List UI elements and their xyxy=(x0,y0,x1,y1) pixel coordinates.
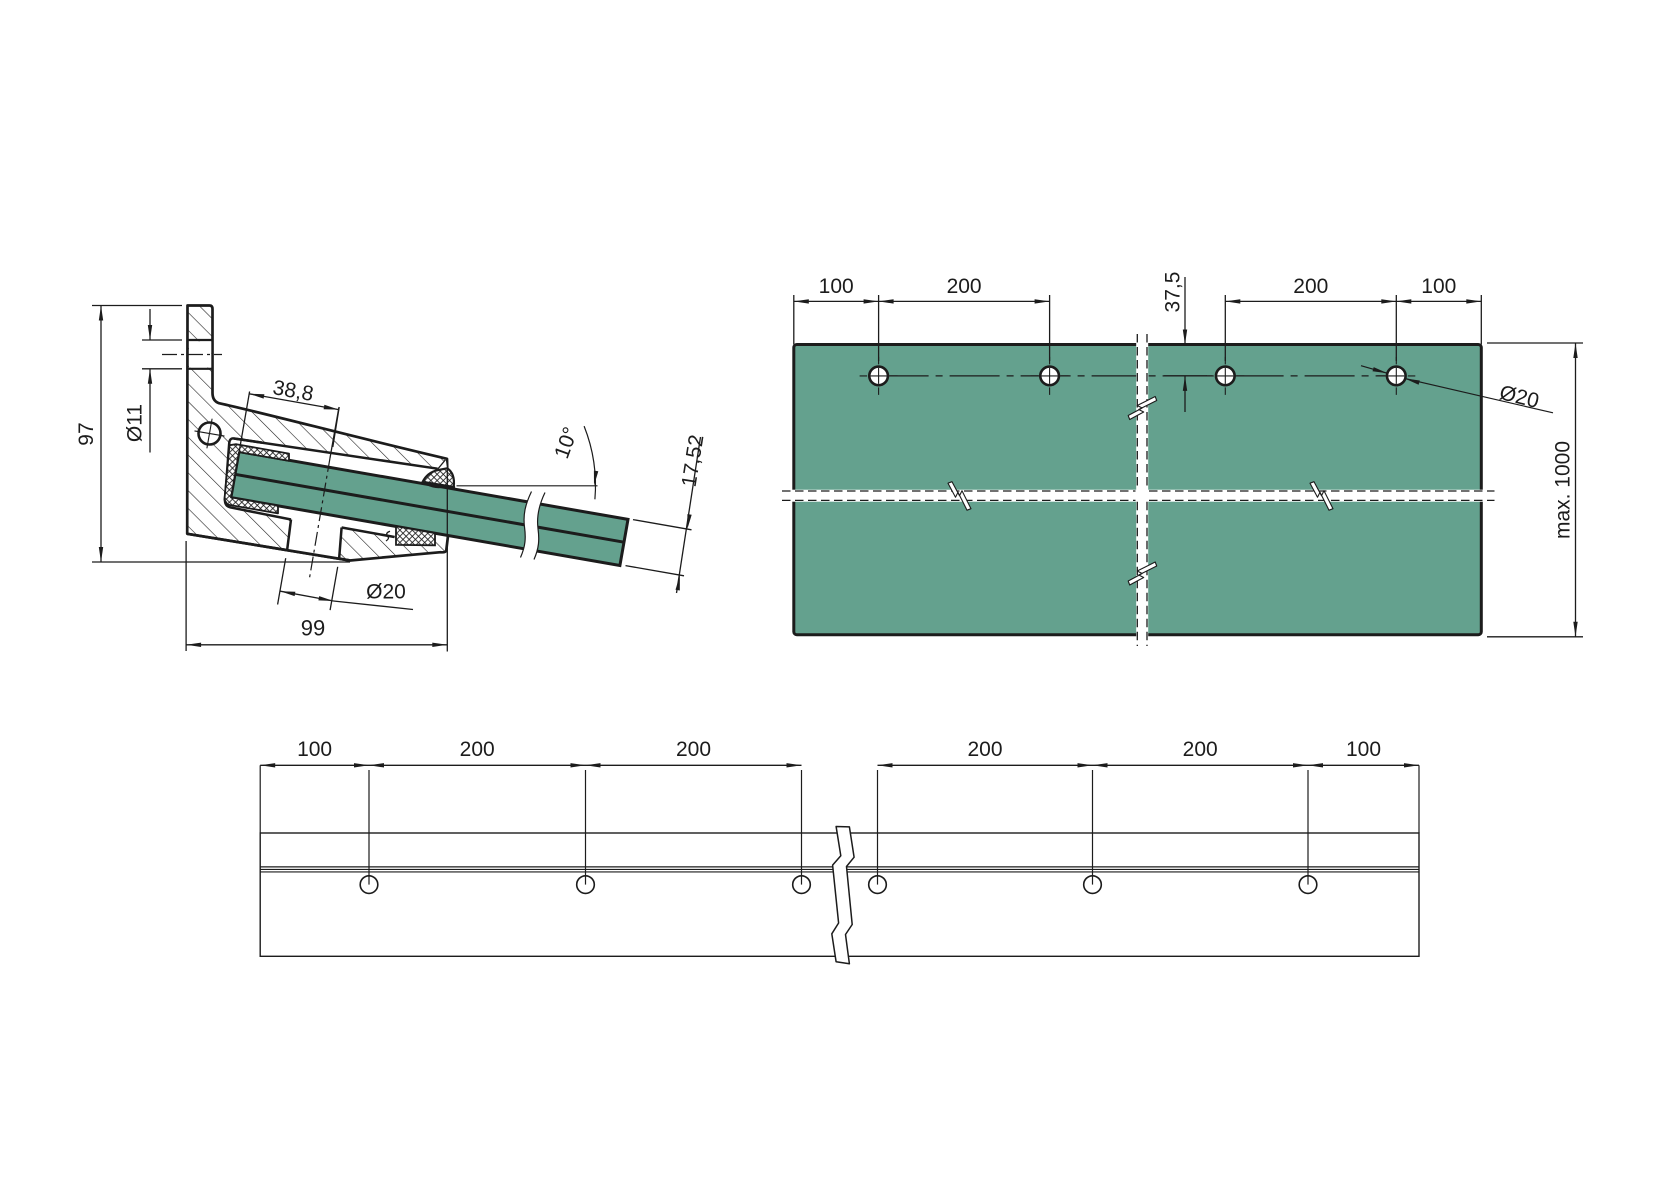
svg-text:99: 99 xyxy=(301,615,325,640)
svg-text:200: 200 xyxy=(1293,275,1328,298)
svg-text:200: 200 xyxy=(1183,738,1218,761)
svg-text:Ø20: Ø20 xyxy=(366,581,406,604)
svg-text:Ø11: Ø11 xyxy=(124,404,147,442)
svg-text:200: 200 xyxy=(947,275,982,298)
svg-text:200: 200 xyxy=(460,738,495,761)
svg-text:100: 100 xyxy=(819,275,854,298)
svg-text:100: 100 xyxy=(297,738,332,761)
svg-text:100: 100 xyxy=(1421,275,1456,298)
svg-text:200: 200 xyxy=(967,738,1002,761)
svg-text:37,5: 37,5 xyxy=(1162,272,1185,313)
svg-text:max. 1000: max. 1000 xyxy=(1551,441,1574,539)
svg-text:97: 97 xyxy=(75,422,98,445)
svg-text:100: 100 xyxy=(1346,738,1381,761)
svg-text:200: 200 xyxy=(676,738,711,761)
